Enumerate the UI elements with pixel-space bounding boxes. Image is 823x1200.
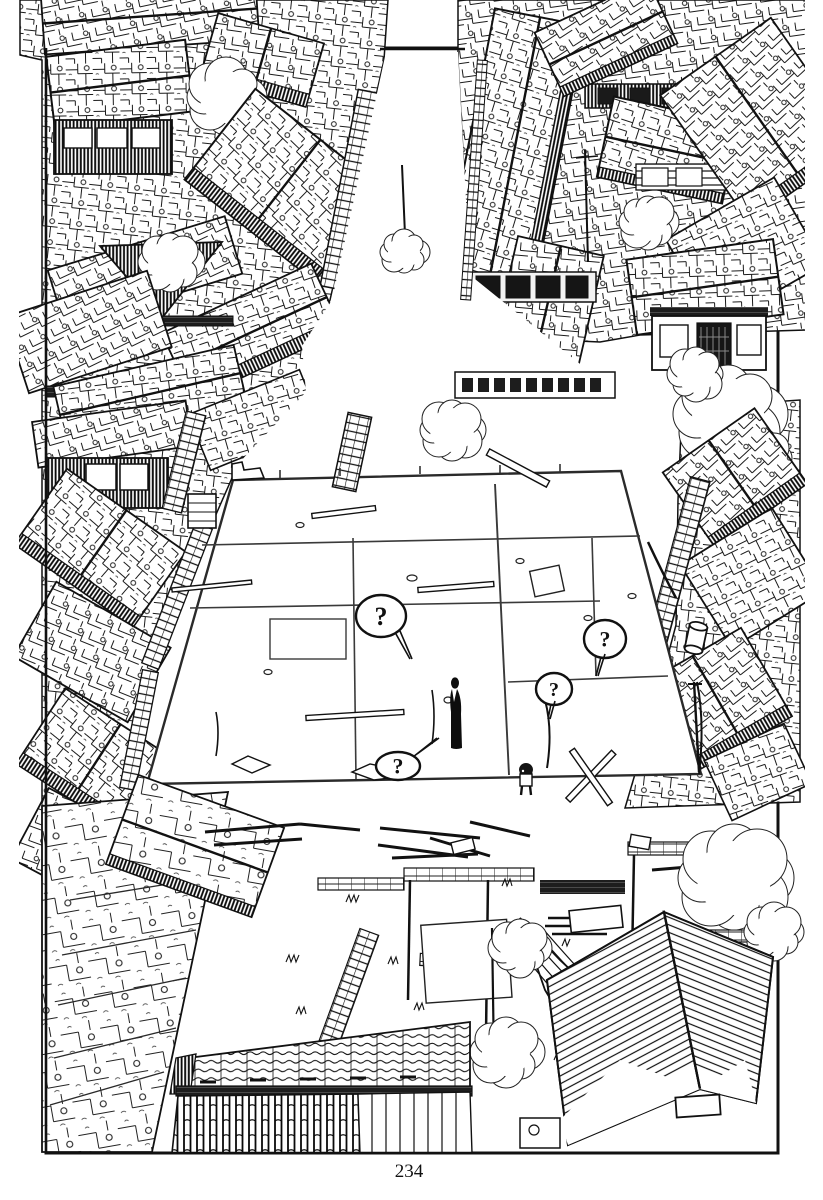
svg-text:234: 234 <box>395 1161 424 1182</box>
svg-text:?: ? <box>549 679 559 701</box>
svg-text:?: ? <box>375 602 388 631</box>
svg-text:?: ? <box>600 626 611 651</box>
svg-text:?: ? <box>393 753 404 778</box>
